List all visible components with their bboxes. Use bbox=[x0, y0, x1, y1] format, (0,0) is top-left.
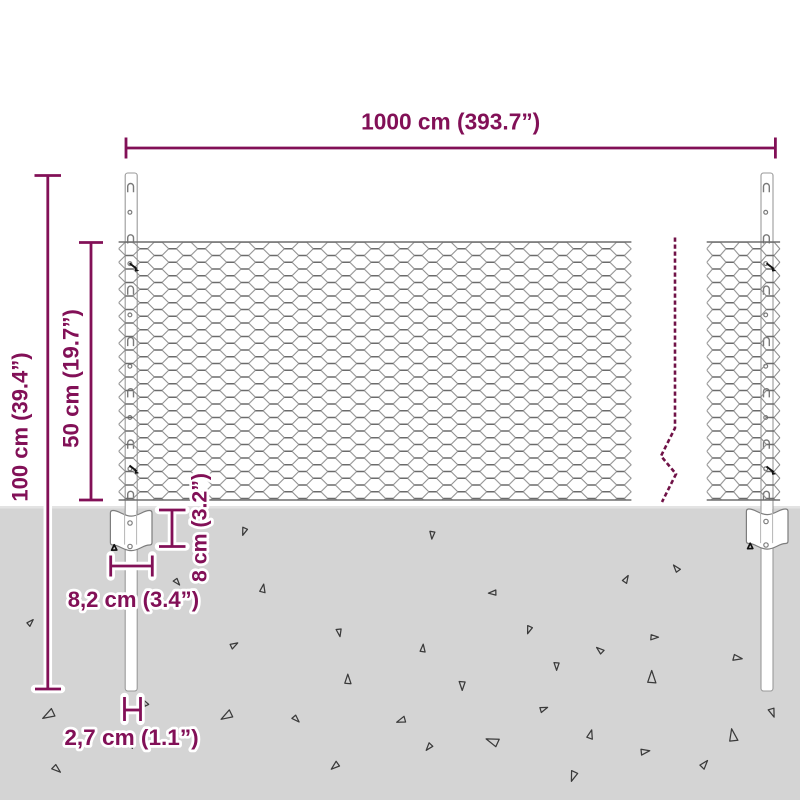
svg-text:100 cm (39.4”): 100 cm (39.4”) bbox=[8, 352, 33, 501]
svg-text:8,2 cm (3.4”): 8,2 cm (3.4”) bbox=[68, 587, 199, 612]
svg-text:2,7 cm (1.1”): 2,7 cm (1.1”) bbox=[64, 725, 198, 750]
svg-text:1000 cm (393.7”): 1000 cm (393.7”) bbox=[361, 109, 540, 135]
svg-text:50 cm (19.7”): 50 cm (19.7”) bbox=[58, 309, 83, 448]
svg-text:8 cm (3.2”): 8 cm (3.2”) bbox=[188, 473, 212, 582]
